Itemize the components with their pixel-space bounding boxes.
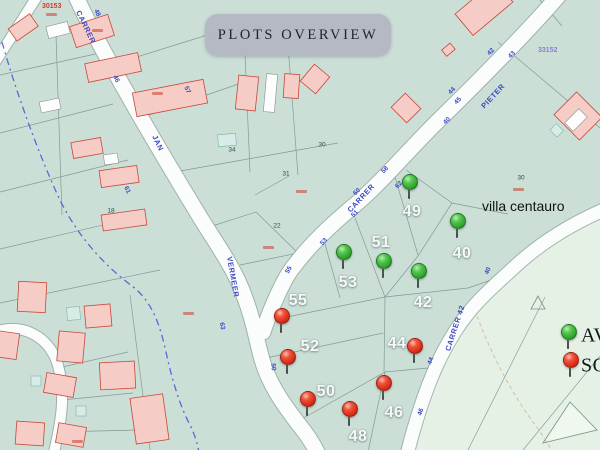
cadastral-mark <box>46 13 57 16</box>
plot-number-label: 55 <box>289 292 308 310</box>
street-number: 55 <box>284 265 294 275</box>
pin-head-icon <box>274 308 290 324</box>
cadastral-mark <box>263 246 274 249</box>
plot-number-label: 50 <box>317 383 336 401</box>
street-label: CARRER <box>346 182 377 214</box>
pin-head-icon <box>280 349 296 365</box>
cadastral-ref: 30153 <box>42 3 61 10</box>
plot-ref-number: 30 <box>517 175 524 182</box>
street-label: CARRER 42 <box>443 304 466 352</box>
plot-number-label: 53 <box>339 274 358 292</box>
plot-ref-number: 34 <box>228 147 235 154</box>
area-label: villa centauro <box>482 198 565 214</box>
plot-number-label: 40 <box>453 245 472 263</box>
street-number: 40 <box>483 266 492 276</box>
street-number: 53 <box>319 237 329 247</box>
pin-head <box>561 324 577 340</box>
cadastral-mark <box>72 440 83 443</box>
cadastral-ref: 33152 <box>538 47 557 54</box>
plot-number-label: 42 <box>414 294 433 312</box>
cadastral-mark <box>513 188 524 191</box>
cadastral-mark <box>92 29 103 32</box>
title-pill: PLOTS OVERVIEW <box>205 14 391 56</box>
pin-head-icon <box>342 401 358 417</box>
street-number: 50 <box>269 363 277 371</box>
pin-head <box>563 352 579 368</box>
street-number: 46 <box>417 407 426 416</box>
street-number: 42 <box>486 47 496 57</box>
plot-ref-number: 18 <box>107 208 114 215</box>
pin-head-icon <box>402 174 418 190</box>
pin-head-icon <box>450 213 466 229</box>
street-number: 40 <box>442 116 452 126</box>
pin-head-icon <box>376 253 392 269</box>
street-number: 45 <box>453 96 463 106</box>
street-number: 43 <box>507 50 517 60</box>
cadastral-mark <box>183 312 194 315</box>
street-label: VERMEER <box>225 256 241 298</box>
plots-overview-map: CARRERJANVERMEERCARRERPIETERCARRER 42484… <box>0 0 600 450</box>
street-number: 58 <box>380 165 390 175</box>
street-number: 48 <box>92 8 101 18</box>
street-number: 46 <box>111 74 120 84</box>
plot-ref-number: 31 <box>282 171 289 178</box>
plot-ref-number: 22 <box>273 223 280 230</box>
page-title: PLOTS OVERVIEW <box>218 27 379 44</box>
street-label: PIETER <box>479 82 507 111</box>
street-number: 61 <box>122 185 131 195</box>
plot-number-label: 52 <box>301 338 320 356</box>
plot-number-label: 48 <box>349 428 368 446</box>
plot-number-label: 46 <box>385 404 404 422</box>
pin-head-icon <box>376 375 392 391</box>
plot-number-label: 49 <box>403 203 422 221</box>
street-number: 57 <box>182 85 191 95</box>
cadastral-mark <box>296 190 307 193</box>
plot-number-label: 51 <box>372 234 391 252</box>
street-label: JAN <box>150 133 165 152</box>
legend-available-label: AV <box>581 325 600 348</box>
street-number: 44 <box>447 86 457 96</box>
legend-sold-label: SO <box>581 355 600 378</box>
plot-ref-number: 30 <box>318 142 325 149</box>
pin-head-icon <box>407 338 423 354</box>
street-number: 44 <box>426 356 435 365</box>
street-number: 63 <box>218 322 226 330</box>
pin-head-icon <box>411 263 427 279</box>
plot-number-label: 44 <box>388 335 407 353</box>
pin-head-icon <box>336 244 352 260</box>
cadastral-mark <box>152 92 163 95</box>
pin-head-icon <box>300 391 316 407</box>
map-overlay: CARRERJANVERMEERCARRERPIETERCARRER 42484… <box>0 0 600 450</box>
